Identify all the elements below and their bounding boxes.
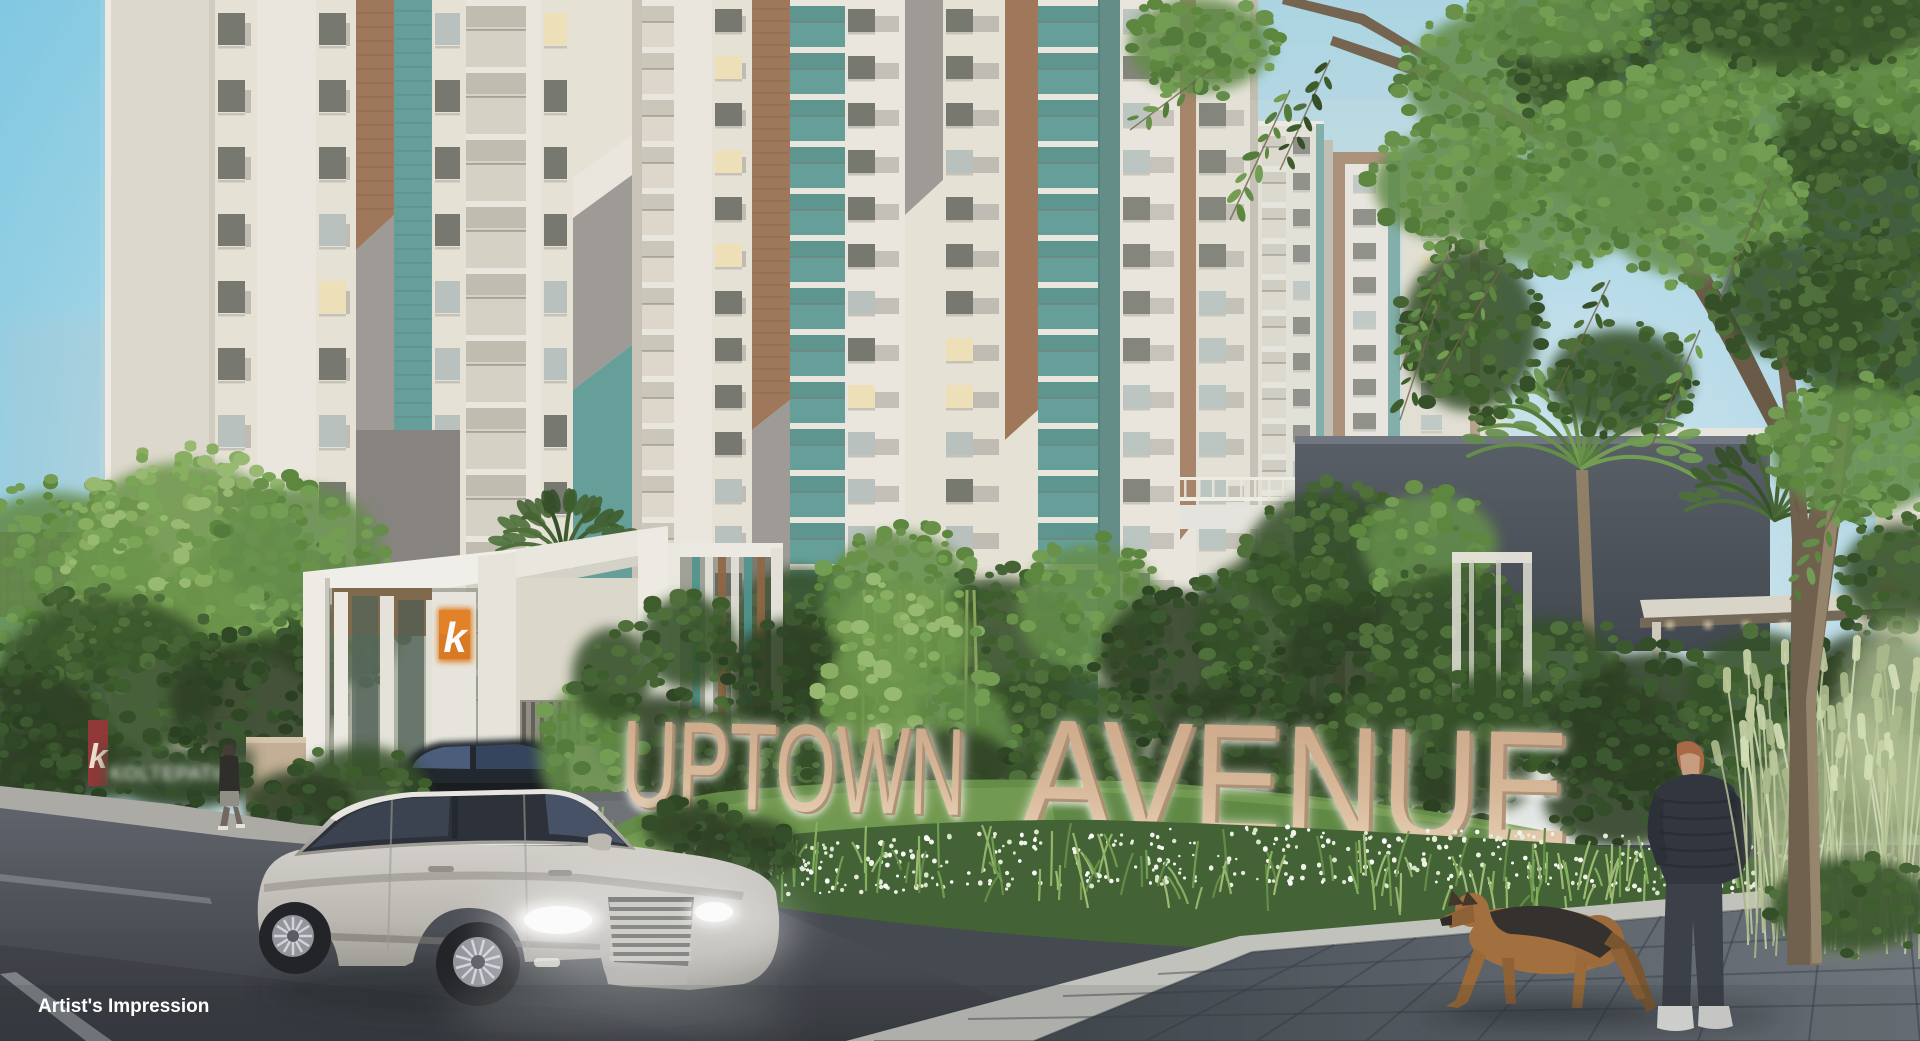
svg-text:Artist's Impression: Artist's Impression	[38, 996, 209, 1017]
